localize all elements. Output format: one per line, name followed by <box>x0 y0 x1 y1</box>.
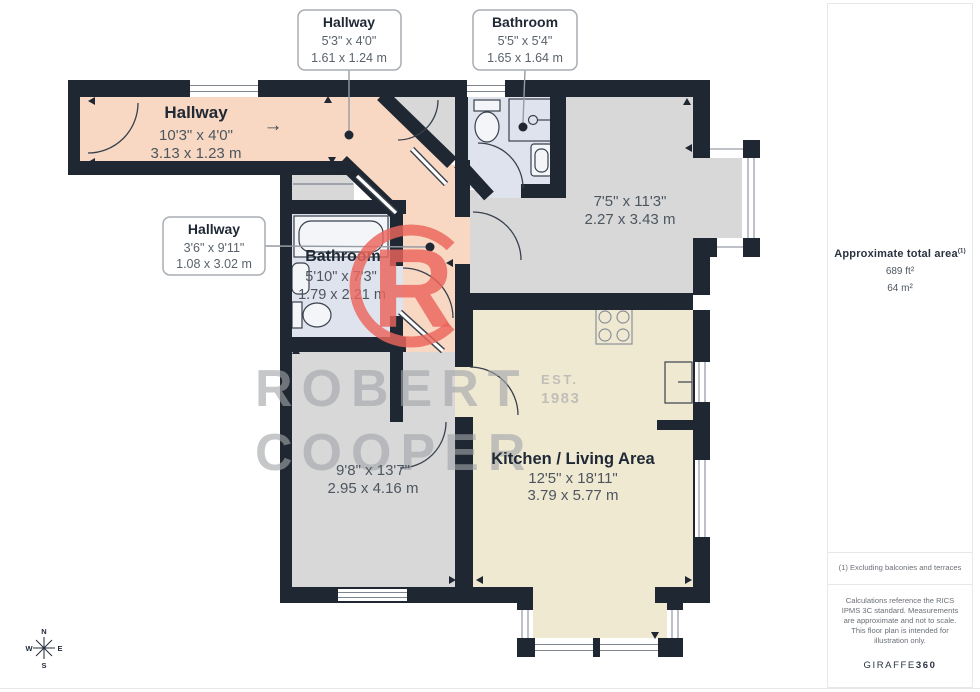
callout-imperial: 5'5" x 5'4" <box>498 34 553 48</box>
room-metric: 3.79 x 5.77 m <box>528 487 619 504</box>
callout-imperial: 5'3" x 4'0" <box>322 34 377 48</box>
floorplan-page: Bathroom 5'10" x 7'3" 1.79 x 2.21 m R RO… <box>0 0 980 692</box>
toilet-bowl <box>475 112 499 142</box>
callout-metric: 1.08 x 3.02 m <box>176 257 252 271</box>
toilet-bowl <box>303 303 331 327</box>
total-area-ft: 689 ft² <box>828 266 972 277</box>
callout-title: Hallway <box>323 14 375 30</box>
giraffe360-logo: GIRAFFE360 <box>828 660 972 671</box>
room-metric: 3.13 x 1.23 m <box>151 145 242 162</box>
callout-title: Hallway <box>188 221 240 237</box>
total-area-title: Approximate total area(1) <box>828 248 972 260</box>
brand-monogram: R <box>373 226 454 351</box>
rics-disclaimer: Calculations reference the RICS IPMS 3C … <box>837 596 963 646</box>
room-metric: 2.27 x 3.43 m <box>585 211 676 228</box>
toilet-tank <box>474 100 500 111</box>
room-imperial: 12'5" x 18'11" <box>528 470 618 487</box>
total-area-block: Approximate total area(1) 689 ft² 64 m² <box>828 248 972 294</box>
callout-metric: 1.61 x 1.24 m <box>311 51 387 65</box>
compass-n: N <box>41 627 46 636</box>
info-sidebar: Approximate total area(1) 689 ft² 64 m² … <box>827 3 973 688</box>
room-imperial: 5'10" x 7'3" <box>305 269 376 285</box>
divider <box>828 552 972 553</box>
compass-icon: N S W E <box>25 627 62 670</box>
callout-title: Bathroom <box>492 14 558 30</box>
callout-metric: 1.65 x 1.64 m <box>487 51 563 65</box>
area-footnote-marker: (1) <box>958 248 966 254</box>
watermark-est: EST. <box>541 372 578 387</box>
watermark-line1: ROBERT <box>255 360 529 418</box>
room-imperial: 9'8" x 13'7" <box>336 462 410 479</box>
total-area-m: 64 m² <box>828 283 972 294</box>
room-name: Hallway <box>164 103 228 122</box>
watermark-year: 1983 <box>541 390 580 407</box>
room-imperial: 10'3" x 4'0" <box>159 127 233 144</box>
direction-arrow: → <box>264 115 283 136</box>
room-name: Kitchen / Living Area <box>491 450 655 468</box>
room-metric: 2.95 x 4.16 m <box>328 480 419 497</box>
page-bottom-rule <box>0 688 980 689</box>
compass-s: S <box>41 661 46 670</box>
room-imperial: 7'5" x 11'3" <box>594 193 667 210</box>
toilet-tank <box>292 302 302 328</box>
compass-w: W <box>25 644 33 653</box>
compass-e: E <box>57 644 62 653</box>
exclusion-footnote: (1) Excluding balconies and terraces <box>832 563 968 572</box>
callout-imperial: 3'6" x 9'11" <box>184 241 245 255</box>
divider <box>828 584 972 585</box>
